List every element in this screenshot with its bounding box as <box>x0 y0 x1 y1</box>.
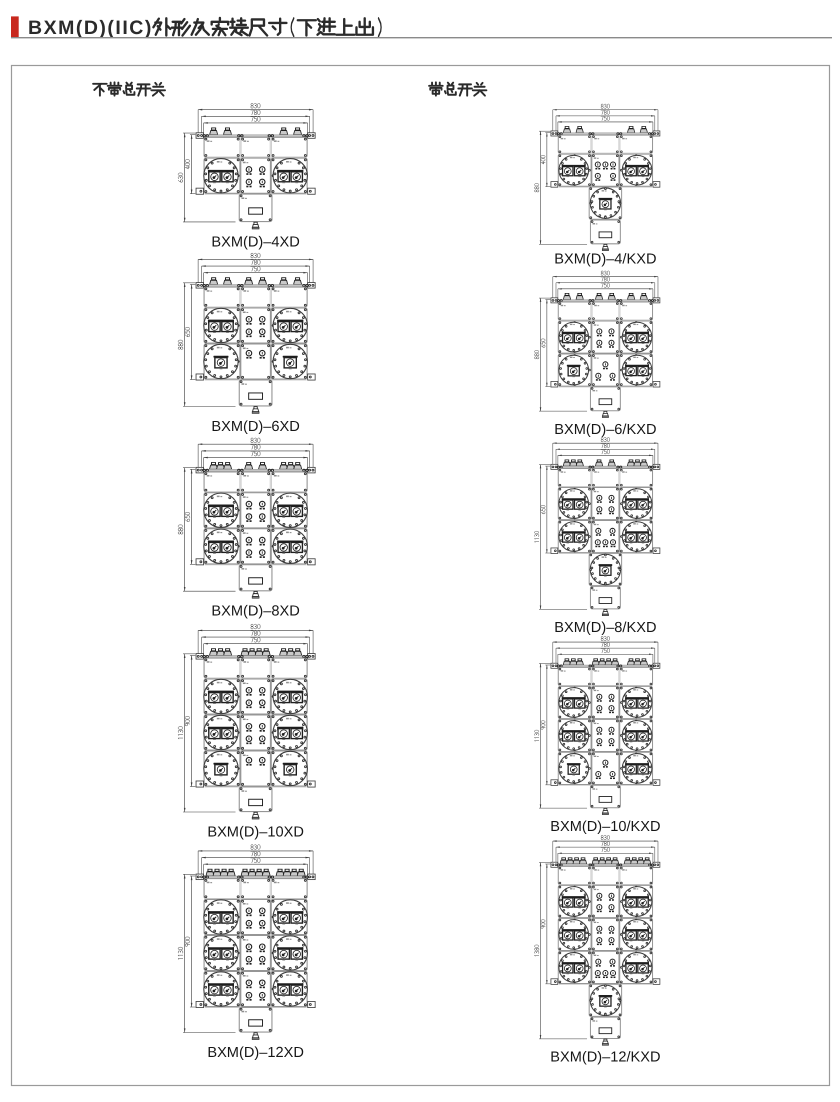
svg-text:BXM(D)–8/KXD: BXM(D)–8/KXD <box>554 619 656 635</box>
svg-text:BXM(D)–6/KXD: BXM(D)–6/KXD <box>554 421 656 437</box>
svg-text:BXM(D)(IIC): BXM(D)(IIC) <box>28 17 153 39</box>
svg-text:BXM(D)–12XD: BXM(D)–12XD <box>207 1044 304 1060</box>
svg-text:BXM(D)–10XD: BXM(D)–10XD <box>207 823 304 839</box>
svg-text:BXM(D)–12/KXD: BXM(D)–12/KXD <box>550 1049 660 1065</box>
svg-text:BXM(D)–6XD: BXM(D)–6XD <box>211 418 299 434</box>
svg-text:BXM(D)–4/KXD: BXM(D)–4/KXD <box>554 250 656 266</box>
svg-text:BXM(D)–4XD: BXM(D)–4XD <box>211 233 299 249</box>
svg-text:BXM(D)–10/KXD: BXM(D)–10/KXD <box>550 818 660 834</box>
svg-text:BXM(D)–8XD: BXM(D)–8XD <box>211 603 299 619</box>
